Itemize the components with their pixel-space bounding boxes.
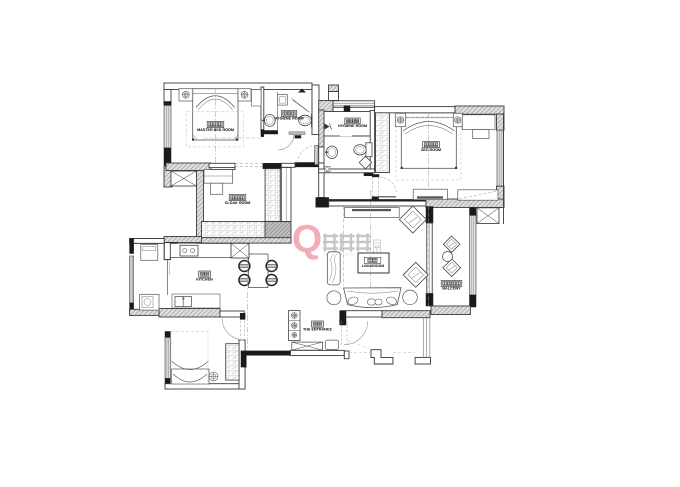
svg-text:HYGIENE ROOM: HYGIENE ROOM bbox=[338, 124, 367, 128]
svg-text:MASTER BED ROOM: MASTER BED ROOM bbox=[197, 128, 234, 132]
svg-text:KITCHEN: KITCHEN bbox=[196, 277, 213, 281]
svg-text:HYGIENE ROOM: HYGIENE ROOM bbox=[274, 117, 303, 121]
svg-text:THE ENTRANCE: THE ENTRANCE bbox=[303, 327, 332, 331]
svg-text:Q: Q bbox=[292, 218, 322, 261]
svg-text:LIVINGROOM: LIVINGROOM bbox=[362, 264, 385, 268]
svg-text:BALCONY: BALCONY bbox=[442, 287, 461, 291]
svg-text:CLOAK ROOM: CLOAK ROOM bbox=[225, 201, 251, 205]
svg-text:SEC ROOM: SEC ROOM bbox=[421, 148, 441, 152]
